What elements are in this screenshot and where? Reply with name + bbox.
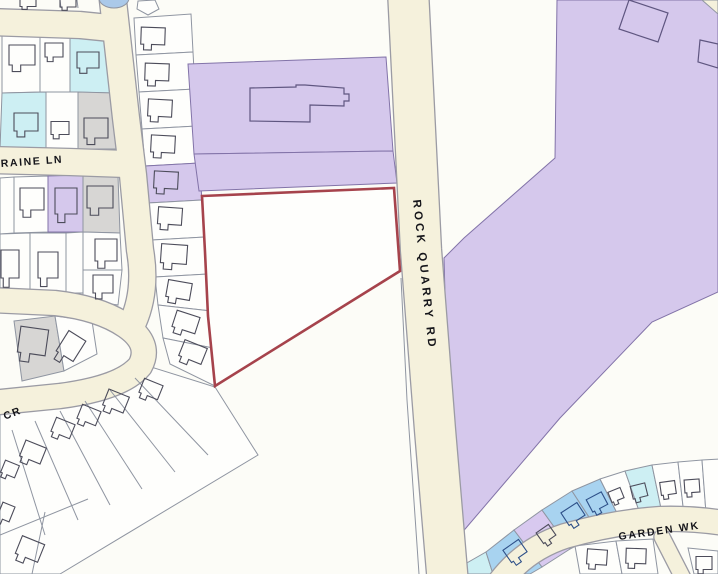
parcel[interactable] bbox=[66, 232, 83, 293]
parcel[interactable] bbox=[14, 176, 48, 233]
parcel[interactable] bbox=[188, 57, 393, 154]
parcel-map-stage: RAINE LNLL CRROCK QUARRY RDGARDEN WK bbox=[0, 0, 718, 574]
parcel[interactable] bbox=[134, 14, 193, 55]
parcel[interactable] bbox=[30, 233, 66, 295]
parcel[interactable] bbox=[616, 539, 658, 574]
parcel[interactable] bbox=[46, 92, 78, 149]
road-top-left-street[interactable] bbox=[0, 22, 110, 28]
parcel[interactable] bbox=[575, 541, 622, 574]
parcel[interactable] bbox=[40, 33, 70, 92]
parcel[interactable] bbox=[48, 175, 83, 232]
parcel[interactable] bbox=[148, 200, 205, 240]
parcel[interactable] bbox=[0, 177, 14, 234]
parcel[interactable] bbox=[2, 33, 40, 93]
parcel-map-canvas[interactable]: RAINE LNLL CRROCK QUARRY RDGARDEN WK bbox=[0, 0, 718, 574]
parcel[interactable] bbox=[0, 92, 46, 149]
parcel[interactable] bbox=[83, 175, 120, 233]
parcel[interactable] bbox=[83, 232, 122, 270]
